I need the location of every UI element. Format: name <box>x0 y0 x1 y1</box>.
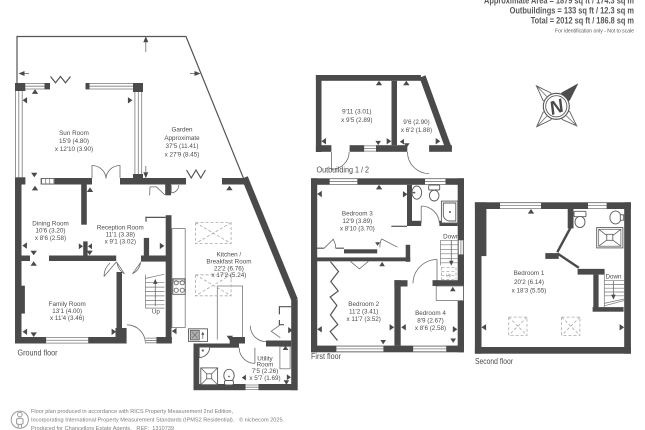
svg-text:15'9 (4.80): 15'9 (4.80) <box>59 138 89 145</box>
svg-text:Down: Down <box>443 233 460 240</box>
svg-text:x 18'3 (5.55): x 18'3 (5.55) <box>512 288 547 295</box>
svg-text:For identification only - Not: For identification only - Not to scale <box>555 28 634 34</box>
svg-text:9'6 (2.90): 9'6 (2.90) <box>403 119 429 126</box>
svg-text:Sun Room: Sun Room <box>59 130 89 137</box>
svg-text:11'1 (3.38): 11'1 (3.38) <box>106 232 135 239</box>
svg-text:x 11'7 (3.52): x 11'7 (3.52) <box>347 316 381 323</box>
svg-text:Ground floor: Ground floor <box>18 348 58 358</box>
svg-text:Dining Room: Dining Room <box>32 220 68 227</box>
svg-text:9'11 (3.01): 9'11 (3.01) <box>342 108 371 115</box>
svg-text:Family Room: Family Room <box>49 301 86 308</box>
svg-text:Second floor: Second floor <box>475 356 513 366</box>
svg-text:Up: Up <box>152 308 161 315</box>
svg-text:Reception Room: Reception Room <box>97 225 144 232</box>
svg-text:x 27'9 (8.45): x 27'9 (8.45) <box>165 151 200 158</box>
svg-text:Garden: Garden <box>171 127 193 134</box>
svg-text:x 17'2 (5.24): x 17'2 (5.24) <box>211 272 246 279</box>
svg-text:x 8'6 (2.58): x 8'6 (2.58) <box>35 235 66 242</box>
svg-text:Incorporating International Pr: Incorporating International Property Mea… <box>31 417 285 424</box>
svg-text:x 9'5 (2.89): x 9'5 (2.89) <box>341 117 372 124</box>
svg-text:Outbuilding 1 / 2: Outbuilding 1 / 2 <box>317 165 370 175</box>
svg-text:First floor: First floor <box>311 351 341 361</box>
svg-text:Down: Down <box>605 273 622 280</box>
svg-text:x 9'1 (3.02): x 9'1 (3.02) <box>105 239 136 246</box>
svg-text:Bedroom 1: Bedroom 1 <box>514 270 545 277</box>
svg-text:13'1 (4.00): 13'1 (4.00) <box>52 308 82 315</box>
svg-text:Bedroom 2: Bedroom 2 <box>348 301 379 308</box>
svg-text:Floor plan produced in accorda: Floor plan produced in accordance with R… <box>31 409 234 415</box>
svg-text:Up: Up <box>446 273 452 278</box>
svg-text:x 11'4 (3.46): x 11'4 (3.46) <box>50 315 84 322</box>
svg-text:Produced for Chancellors Estat: Produced for Chancellors Estate Agents. … <box>31 426 174 430</box>
svg-text:x 8'6 (2.58): x 8'6 (2.58) <box>415 325 446 332</box>
svg-text:11'2 (3.41): 11'2 (3.41) <box>349 309 378 316</box>
svg-text:x 8'10 (3.70): x 8'10 (3.70) <box>340 225 375 232</box>
svg-text:10'6 (3.20): 10'6 (3.20) <box>36 228 66 235</box>
svg-text:x 5'7 (1.69): x 5'7 (1.69) <box>249 375 280 382</box>
svg-text:x 6'2 (1.88): x 6'2 (1.88) <box>401 127 432 134</box>
svg-text:20'2 (6.14): 20'2 (6.14) <box>514 279 544 286</box>
svg-text:Breakfast Room: Breakfast Room <box>206 258 251 265</box>
svg-text:37'5 (11.41): 37'5 (11.41) <box>166 143 199 150</box>
svg-text:Approximate: Approximate <box>164 135 200 142</box>
svg-text:8'9 (2.67): 8'9 (2.67) <box>417 318 443 325</box>
svg-text:12'9 (3.89): 12'9 (3.89) <box>342 218 372 225</box>
svg-text:Bedroom 4: Bedroom 4 <box>415 310 446 317</box>
svg-text:Total = 2012 sq ft / 186.8 sq: Total = 2012 sq ft / 186.8 sq m <box>531 15 634 26</box>
svg-text:x 12'10 (3.90): x 12'10 (3.90) <box>55 146 93 153</box>
svg-text:Bedroom 3: Bedroom 3 <box>342 211 373 218</box>
